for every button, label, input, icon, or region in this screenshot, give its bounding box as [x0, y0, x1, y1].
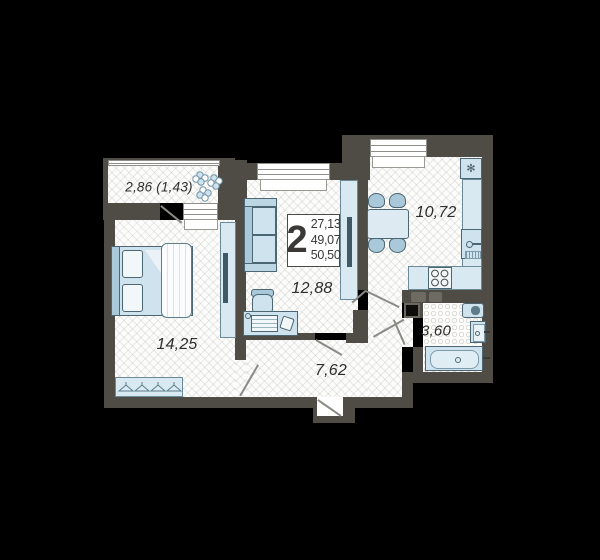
wall — [482, 155, 493, 383]
sofa-cushion — [252, 235, 276, 263]
rooms-count: 2 — [287, 223, 308, 257]
hallway-area-label: 7,62 — [315, 362, 347, 380]
living-tv — [347, 217, 352, 267]
kitchen-area-label: 10,72 — [415, 204, 456, 222]
dining-chair — [389, 238, 406, 253]
living-window — [257, 163, 330, 180]
desk-lamp-dot — [245, 313, 251, 319]
bedroom-balcony-window — [183, 203, 218, 220]
wall — [402, 372, 493, 383]
wall — [427, 135, 493, 157]
wall — [346, 333, 368, 343]
counter-appliance — [429, 292, 442, 302]
toilet — [462, 303, 484, 318]
kitchen-sink — [461, 229, 482, 259]
plant-icon — [190, 169, 226, 203]
pillow — [122, 284, 143, 312]
bathroom-area-label: 3,60 — [421, 323, 451, 340]
sofa-armrest — [244, 263, 277, 272]
area-line-1: 27,13 — [311, 217, 341, 233]
dining-chair — [368, 238, 385, 253]
bedroom-area-label: 14,25 — [156, 336, 197, 354]
wall — [104, 397, 413, 408]
living-area-label: 12,88 — [291, 280, 332, 298]
bedroom-window-sill — [184, 219, 218, 230]
blanket — [161, 243, 192, 318]
stove-burners — [429, 268, 451, 288]
wardrobe — [115, 377, 183, 397]
apartment-info-box: 2 27,13 49,07 50,50 — [287, 214, 340, 267]
sofa-cushion — [252, 207, 276, 235]
living-window-sill — [260, 179, 327, 191]
wall — [247, 163, 257, 180]
area-figures: 27,13 49,07 50,50 — [311, 217, 341, 264]
balcony-glazing — [108, 160, 220, 166]
vent-shaft — [404, 303, 420, 318]
area-line-3: 50,50 — [311, 248, 341, 264]
fridge: ✻ — [460, 158, 482, 179]
dining-chair — [389, 193, 406, 208]
area-line-2: 49,07 — [311, 233, 341, 249]
kitchen-window-sill — [372, 156, 425, 168]
bathtub-faucet — [483, 357, 490, 359]
wall — [413, 347, 423, 372]
snowflake-icon: ✻ — [466, 162, 475, 175]
counter-appliance — [411, 292, 426, 302]
kitchen-window — [370, 139, 427, 157]
sofa-armrest — [244, 198, 277, 207]
balcony-area-label: 2,86 (1,43) — [125, 180, 193, 195]
stove — [428, 267, 452, 289]
dining-chair — [368, 193, 385, 208]
floor-plan: ✻ — [0, 0, 600, 560]
pillow — [122, 250, 143, 278]
laptop — [251, 315, 278, 332]
wall — [330, 163, 346, 180]
wall — [103, 203, 160, 220]
sink-faucet — [484, 331, 490, 333]
dining-table — [367, 209, 409, 239]
hanger-icons — [116, 378, 182, 396]
bedroom-tv — [223, 253, 228, 303]
bathtub — [425, 346, 483, 371]
